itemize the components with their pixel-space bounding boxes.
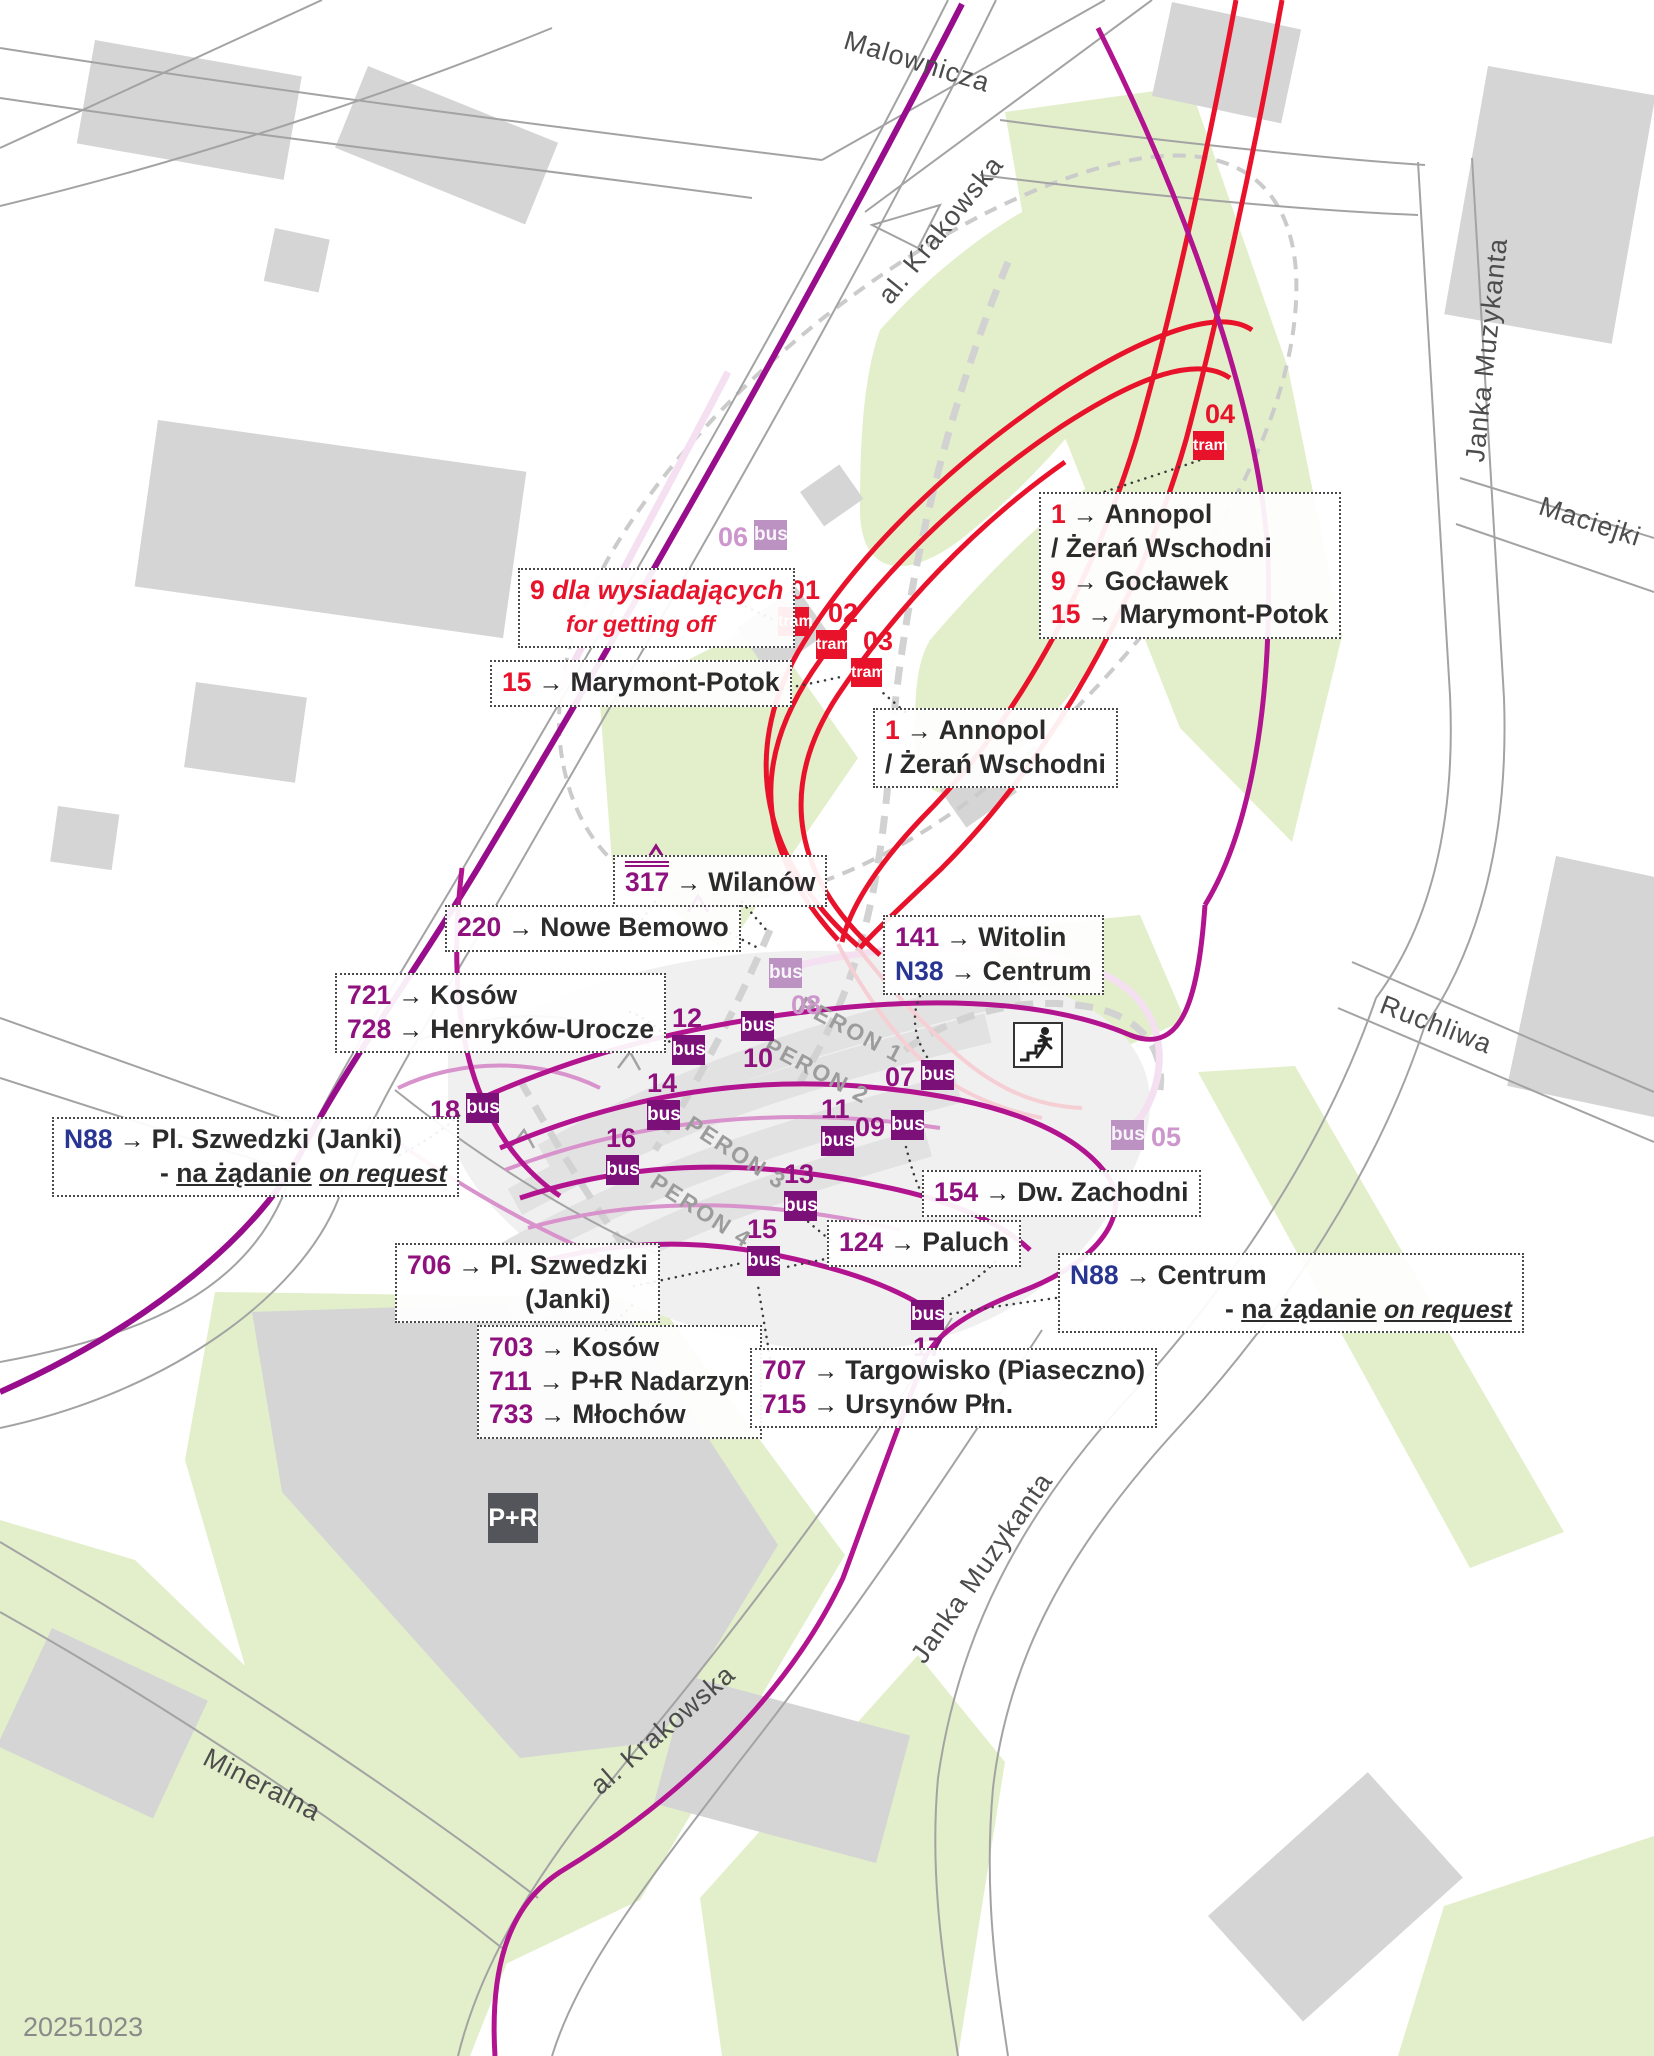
stop-number: 12	[672, 1005, 702, 1032]
label-span: →	[113, 1126, 152, 1154]
label-span: Witolin	[978, 922, 1066, 952]
label-span: →	[1119, 1262, 1158, 1290]
bus-badge: bus	[784, 1191, 817, 1221]
bus-badge: bus	[747, 1246, 780, 1276]
platform-label: PERON 4	[645, 1168, 756, 1253]
bus-badge: bus	[741, 1011, 774, 1041]
label-span: 15	[1051, 599, 1080, 629]
bus-badge: bus	[911, 1300, 944, 1330]
label-span	[1377, 1294, 1384, 1324]
destination-label-dest-124-paluch: 124→Paluch	[827, 1220, 1021, 1267]
destination-label-dest-703-711-733: 703→Kosów711→P+R Nadarzyn733→Młochów	[477, 1325, 762, 1439]
label-span: Annopol	[1105, 499, 1212, 529]
label-span: Marymont-Potok	[570, 667, 779, 697]
tram-badge: tram	[1193, 431, 1224, 460]
stop-number: 06	[718, 524, 748, 551]
label-line: 1→Annopol	[885, 714, 1106, 748]
bus-stop-07: bus07	[921, 1060, 954, 1090]
destination-label-dest-n88-centrum: N88→Centrum- na żądanie on request	[1058, 1253, 1524, 1333]
destination-label-dest-707-715: 707→Targowisko (Piaseczno)715→Ursynów Pł…	[750, 1348, 1157, 1428]
label-span: Kosów	[572, 1332, 659, 1362]
stairs-access-icon	[1013, 1022, 1063, 1068]
bus-stop-15: bus15	[747, 1246, 780, 1276]
label-span: →	[391, 1016, 430, 1044]
label-span: P+R Nadarzyn	[571, 1366, 750, 1396]
bus-stop-05: bus05	[1111, 1120, 1144, 1150]
stop-number: 02	[828, 600, 858, 627]
label-line: 317→Wilanów	[625, 861, 815, 900]
destination-label-tram-terminus-group: 1→Annopol/ Żerań Wschodni9→Gocławek15→Ma…	[1039, 492, 1341, 639]
destination-label-dest-154-zachodni: 154→Dw. Zachodni	[922, 1170, 1201, 1217]
label-span: 707	[762, 1355, 806, 1385]
park-and-ride-badge: P+R	[488, 1493, 538, 1543]
street-label: Maciejki	[1535, 491, 1645, 553]
label-span: →	[532, 1368, 571, 1396]
destination-label-dest-220-bemowo: 220→Nowe Bemowo	[445, 905, 741, 952]
street-label: Janka Muzykanta	[1460, 236, 1514, 463]
stop-number: 14	[647, 1070, 677, 1097]
label-span: Targowisko (Piaseczno)	[845, 1355, 1145, 1385]
label-line: 715→Ursynów Płn.	[762, 1388, 1145, 1422]
bus-stop-06: bus06	[754, 520, 787, 550]
label-span: →	[806, 1357, 845, 1385]
label-line: 9 dla wysiadających	[530, 574, 783, 607]
label-span: 317	[625, 861, 669, 896]
annotation-layer: Malowniczaal. KrakowskaJanka MuzykantaMa…	[0, 0, 1654, 2056]
label-span: on request	[1384, 1296, 1512, 1324]
label-span: 154	[934, 1177, 978, 1207]
street-label: al. Krakowska	[585, 1659, 742, 1801]
label-span: →	[501, 914, 540, 942]
label-line: 15→Marymont-Potok	[502, 666, 780, 700]
bus-stop-17: bus17	[911, 1300, 944, 1330]
label-span: 728	[347, 1014, 391, 1044]
label-span: na żądanie	[1241, 1294, 1377, 1324]
label-span: 721	[347, 980, 391, 1010]
bus-badge: bus	[672, 1035, 705, 1065]
label-line: N88→Centrum	[1070, 1259, 1512, 1293]
label-span: →	[451, 1252, 490, 1280]
label-span: Centrum	[983, 956, 1092, 986]
bus-stop-14: bus14	[647, 1100, 680, 1130]
label-span: N88	[1070, 1260, 1119, 1290]
bus-badge: bus	[466, 1093, 499, 1123]
stop-number: 09	[855, 1114, 885, 1141]
destination-label-dest-706-janki: 706→Pl. Szwedzki(Janki)	[395, 1243, 660, 1323]
label-line: for getting off	[566, 607, 783, 640]
label-line: 707→Targowisko (Piaseczno)	[762, 1354, 1145, 1388]
tram-stop-02: tram02	[816, 630, 847, 659]
label-span: →	[531, 669, 570, 697]
stop-number: 08	[791, 992, 821, 1019]
label-span: →	[533, 1401, 572, 1429]
label-line: (Janki)	[525, 1283, 648, 1316]
label-span: / Żerań Wschodni	[885, 749, 1106, 779]
label-span: 1	[885, 715, 900, 745]
label-span: →	[1066, 501, 1105, 529]
platform-label: PERON 3	[680, 1110, 791, 1195]
bus-stop-11: bus11	[821, 1126, 854, 1156]
label-line: 721→Kosów	[347, 979, 654, 1013]
label-span: →	[1066, 568, 1105, 596]
bus-badge: bus	[647, 1100, 680, 1130]
label-line: 706→Pl. Szwedzki	[407, 1249, 648, 1283]
tram-badge: tram	[851, 658, 882, 687]
label-span: 733	[489, 1399, 533, 1429]
stop-number: 11	[821, 1096, 850, 1123]
destination-label-dest-141-n38: 141→WitolinN38→Centrum	[883, 915, 1104, 995]
bus-stop-08: bus08	[769, 958, 802, 988]
stop-number: 16	[606, 1125, 636, 1152]
label-span: 715	[762, 1389, 806, 1419]
stop-number: 07	[885, 1064, 915, 1091]
label-line: N88→Pl. Szwedzki (Janki)	[64, 1123, 447, 1157]
tram-stop-03: tram03	[851, 658, 882, 687]
label-line: - na żądanie on request	[160, 1157, 447, 1191]
label-line: 703→Kosów	[489, 1331, 750, 1365]
label-span: Ursynów Płn.	[845, 1389, 1013, 1419]
label-span: 15	[502, 667, 531, 697]
label-line: 220→Nowe Bemowo	[457, 911, 729, 945]
label-span: →	[900, 717, 939, 745]
label-span: dla wysiadających	[545, 575, 784, 605]
label-span: Pl. Szwedzki	[490, 1250, 648, 1280]
label-line: / Żerań Wschodni	[885, 748, 1106, 781]
label-span: →	[806, 1391, 845, 1419]
label-span: Wilanów	[708, 867, 815, 897]
bus-badge: bus	[606, 1155, 639, 1185]
label-span: Kosów	[430, 980, 517, 1010]
bus-badge: bus	[821, 1126, 854, 1156]
label-span: Młochów	[572, 1399, 685, 1429]
destination-label-note-getting-off: 9 dla wysiadającychfor getting off	[518, 568, 795, 648]
label-span: →	[391, 982, 430, 1010]
label-span: 220	[457, 912, 501, 942]
stop-number: 03	[863, 628, 893, 655]
label-line: 733→Młochów	[489, 1398, 750, 1432]
label-line: 1→Annopol	[1051, 498, 1329, 532]
label-line: 728→Henryków-Urocze	[347, 1013, 654, 1047]
bus-badge: bus	[891, 1110, 924, 1140]
destination-label-dest-1-annopol: 1→Annopol/ Żerań Wschodni	[873, 708, 1118, 788]
label-line: 9→Gocławek	[1051, 565, 1329, 599]
label-line: 124→Paluch	[839, 1226, 1009, 1260]
label-span: na żądanie	[176, 1158, 312, 1188]
label-line: / Żerań Wschodni	[1051, 532, 1329, 565]
map-date: 20251023	[23, 2012, 143, 2043]
street-label: Mineralna	[198, 1742, 326, 1828]
label-span: N88	[64, 1124, 113, 1154]
bus-stop-13: bus13	[784, 1191, 817, 1221]
label-line: 15→Marymont-Potok	[1051, 598, 1329, 632]
label-span: Marymont-Potok	[1119, 599, 1328, 629]
bus-badge: bus	[754, 520, 787, 550]
label-span: Henryków-Urocze	[430, 1014, 654, 1044]
label-span	[312, 1158, 319, 1188]
destination-label-dest-n88-janki: N88→Pl. Szwedzki (Janki)- na żądanie on …	[52, 1117, 459, 1197]
street-label: Ruchliwa	[1376, 989, 1497, 1060]
bus-stop-16: bus16	[606, 1155, 639, 1185]
label-span: Centrum	[1158, 1260, 1267, 1290]
label-span: Paluch	[922, 1227, 1009, 1257]
label-span: on request	[319, 1160, 447, 1188]
stop-number: 13	[784, 1161, 814, 1188]
label-span: (Janki)	[525, 1284, 610, 1314]
stop-number: 15	[747, 1216, 777, 1243]
label-line: 154→Dw. Zachodni	[934, 1176, 1189, 1210]
bus-stop-12: bus12	[672, 1035, 705, 1065]
label-span: →	[533, 1334, 572, 1362]
label-span: 1	[1051, 499, 1066, 529]
label-span: 706	[407, 1250, 451, 1280]
label-span: 9	[530, 575, 545, 605]
street-label: al. Krakowska	[872, 150, 1010, 310]
label-span: 9	[1051, 566, 1066, 596]
label-span: -	[160, 1158, 176, 1188]
bus-stop-09: bus09	[891, 1110, 924, 1140]
tram-stop-04: tram04	[1193, 431, 1224, 460]
label-span: →	[978, 1179, 1017, 1207]
label-span: Annopol	[939, 715, 1046, 745]
label-span: Nowe Bemowo	[540, 912, 728, 942]
label-span: Dw. Zachodni	[1017, 1177, 1188, 1207]
label-span: →	[883, 1229, 922, 1257]
destination-label-dest-15-marymont: 15→Marymont-Potok	[490, 660, 792, 707]
destination-label-dest-721-728: 721→Kosów728→Henryków-Urocze	[335, 973, 666, 1053]
label-span: Pl. Szwedzki (Janki)	[152, 1124, 402, 1154]
label-span: / Żerań Wschodni	[1051, 533, 1272, 563]
label-span: →	[669, 869, 708, 897]
label-span: -	[1225, 1294, 1241, 1324]
label-span: →	[939, 924, 978, 952]
label-span: for getting off	[566, 611, 715, 637]
label-span: N38	[895, 956, 944, 986]
bus-stop-10: bus10	[741, 1011, 774, 1041]
transit-stop-map: Malowniczaal. KrakowskaJanka MuzykantaMa…	[0, 0, 1654, 2056]
label-line: - na żądanie on request	[1225, 1293, 1512, 1327]
label-span: →	[1080, 601, 1119, 629]
label-line: 141→Witolin	[895, 921, 1092, 955]
label-line: 711→P+R Nadarzyn	[489, 1365, 750, 1399]
label-span: →	[944, 958, 983, 986]
stop-number: 05	[1151, 1124, 1181, 1151]
label-span: 703	[489, 1332, 533, 1362]
label-line: N38→Centrum	[895, 955, 1092, 989]
bus-badge: bus	[921, 1060, 954, 1090]
tram-badge: tram	[816, 630, 847, 659]
bus-badge: bus	[769, 958, 802, 988]
bus-badge: bus	[1111, 1120, 1144, 1150]
destination-label-dest-317-wilanow: 317→Wilanów	[613, 855, 827, 907]
street-label: Malownicza	[840, 25, 994, 99]
stop-number: 10	[743, 1045, 773, 1072]
label-span: 711	[489, 1366, 532, 1396]
label-span: Gocławek	[1105, 566, 1229, 596]
stop-number: 04	[1205, 401, 1235, 428]
label-span: 124	[839, 1227, 883, 1257]
bus-stop-18: bus18	[466, 1093, 499, 1123]
label-span: 141	[895, 922, 939, 952]
street-label: Janka Muzykanta	[905, 1467, 1060, 1669]
